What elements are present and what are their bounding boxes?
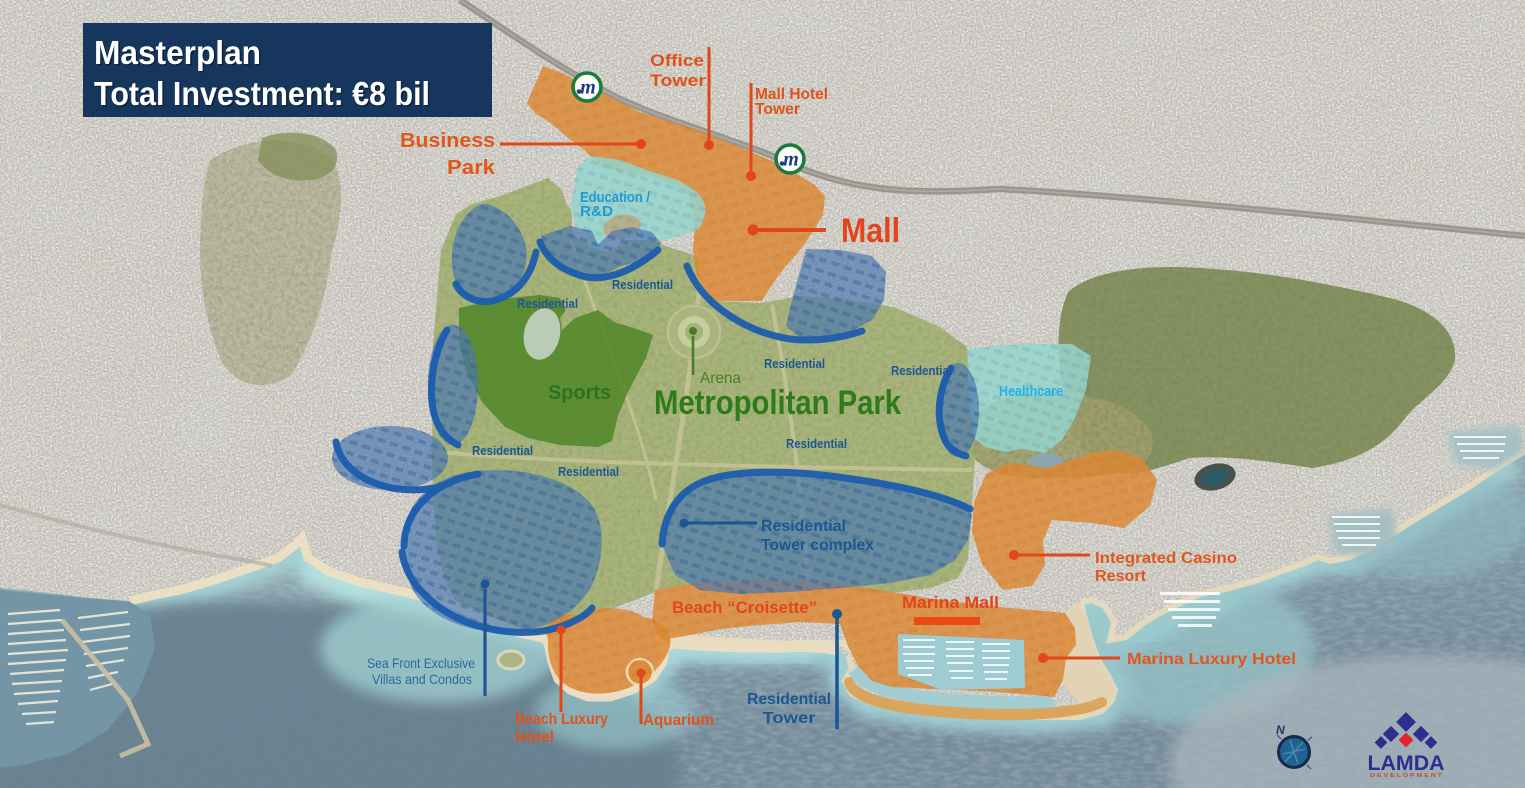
svg-text:Tower: Tower	[763, 710, 816, 727]
svg-text:Residential: Residential	[891, 363, 952, 378]
svg-text:Integrated Casino: Integrated Casino	[1095, 550, 1237, 567]
svg-text:m: m	[580, 77, 596, 99]
svg-text:Residential: Residential	[761, 518, 846, 535]
svg-text:Resort: Resort	[1095, 568, 1146, 585]
svg-text:Residential: Residential	[558, 464, 619, 479]
svg-text:Tower: Tower	[650, 71, 706, 90]
svg-text:Residential: Residential	[747, 691, 831, 708]
svg-text:Beach Luxury: Beach Luxury	[515, 711, 608, 728]
svg-text:LAMDA: LAMDA	[1368, 752, 1445, 775]
svg-text:Marina Mall: Marina Mall	[902, 593, 999, 612]
svg-text:Villas and Condos: Villas and Condos	[372, 671, 472, 687]
svg-text:Total Investment: €8 bil: Total Investment: €8 bil	[94, 75, 430, 112]
svg-text:Marina Luxury Hotel: Marina Luxury Hotel	[1127, 651, 1296, 668]
svg-text:Residential: Residential	[612, 277, 673, 292]
svg-text:m: m	[783, 149, 799, 171]
svg-text:Sports: Sports	[548, 382, 611, 404]
svg-text:Residential: Residential	[764, 356, 825, 371]
svg-text:Tower complex: Tower complex	[761, 537, 874, 554]
svg-text:Metropolitan Park: Metropolitan Park	[654, 384, 901, 422]
svg-text:Residential: Residential	[517, 296, 578, 311]
svg-text:Residential: Residential	[786, 436, 847, 451]
svg-text:D E V E L O P M E N T: D E V E L O P M E N T	[1370, 773, 1443, 779]
svg-text:Mall: Mall	[841, 212, 900, 250]
svg-text:Park: Park	[447, 157, 496, 179]
svg-text:Healthcare: Healthcare	[999, 384, 1063, 400]
svg-text:Masterplan: Masterplan	[94, 34, 261, 71]
svg-text:Tower: Tower	[755, 101, 800, 118]
svg-text:Sea Front Exclusive: Sea Front Exclusive	[367, 655, 475, 671]
svg-text:N: N	[1276, 723, 1285, 737]
svg-text:Aquarium: Aquarium	[643, 712, 714, 729]
svg-text:Hotel: Hotel	[515, 729, 554, 746]
svg-text:Residential: Residential	[472, 443, 533, 458]
svg-text:Arena: Arena	[700, 370, 741, 387]
svg-text:Beach “Croisette”: Beach “Croisette”	[672, 599, 817, 617]
svg-text:Business: Business	[400, 130, 495, 152]
svg-text:Office: Office	[650, 51, 704, 70]
svg-text:R&D: R&D	[580, 204, 613, 220]
